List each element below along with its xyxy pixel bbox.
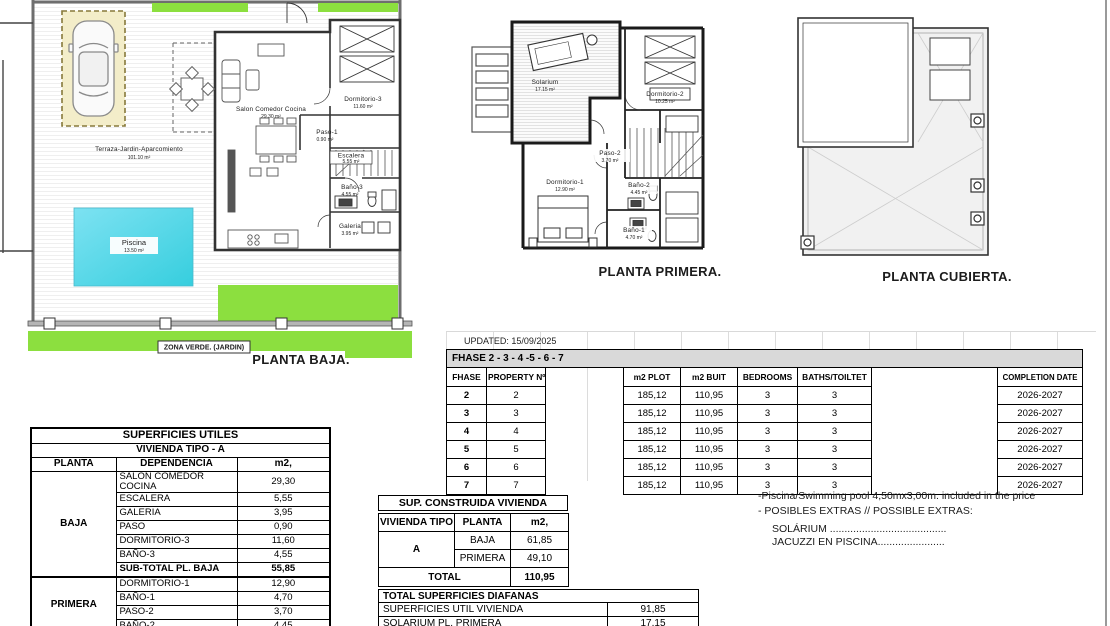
- bed-icon-dorm1: [529, 196, 597, 247]
- col-header-built: m2 BUIT: [681, 368, 738, 387]
- cell-fhase: 3: [447, 405, 487, 423]
- m2-cell: 4,55: [237, 548, 330, 562]
- total-row: TOTAL 110,95: [379, 568, 569, 587]
- dependencia-cell: DORMITORIO-1: [116, 577, 237, 592]
- phase-table-row: 3 3 185,12 110,95 3 3 2026-2027: [447, 405, 1083, 423]
- bano3-area: 4.55 m²: [342, 192, 359, 198]
- terraza-label: Terraza-Jardin-Aparcomiento: [95, 146, 183, 153]
- green-strip-bottom-ext: [345, 351, 412, 358]
- subtotal-label: SUB-TOTAL PL. BAJA: [116, 562, 237, 577]
- escalera-area: 5.55 m²: [343, 159, 360, 165]
- plan-planta-cubierta: PLANTA CUBIERTA.: [770, 0, 1110, 300]
- superficies-utiles-table: SUPERFICIES UTILES VIVIENDA TIPO - A PLA…: [30, 427, 331, 626]
- paso1-area: 0.90 m²: [317, 137, 334, 143]
- bano3-label: Baño-3: [341, 184, 363, 191]
- m2-cell: 49,10: [511, 550, 569, 568]
- dependencia-cell: SALON COMEDOR COCINA: [116, 472, 237, 493]
- balcony-louvers: [472, 47, 512, 132]
- extra-solarium: SOLÁRIUM ...............................…: [772, 523, 1098, 535]
- gap-cell: [546, 459, 624, 477]
- cell-property: 6: [487, 459, 546, 477]
- planta-primera-title: PLANTA PRIMERA.: [599, 264, 722, 279]
- dependencia-cell: GALERIA: [116, 506, 237, 520]
- bano2-area: 4.45 m²: [631, 190, 648, 196]
- phase-table-row: 5 5 185,12 110,95 3 3 2026-2027: [447, 441, 1083, 459]
- dependencia-cell: BAÑO-2: [116, 619, 237, 626]
- diafanas-table: TOTAL SUPERFICIES DIAFANAS SUPERFICIES U…: [378, 589, 699, 626]
- gap-cell: [546, 423, 624, 441]
- m2-cell: 61,85: [511, 532, 569, 550]
- m2-cell: 11,60: [237, 534, 330, 548]
- planta-cell: BAJA: [455, 532, 511, 550]
- superficies-utiles-title: SUPERFICIES UTILES: [31, 428, 330, 444]
- col-planta: PLANTA: [455, 514, 511, 532]
- cell-fhase: 7: [447, 477, 487, 495]
- table-row: PRIMERA DORMITORIO-1 12,90: [31, 577, 330, 592]
- tipo-cell: A: [379, 532, 455, 568]
- sup-construida-title: SUP. CONSTRUIDA VIVIENDA: [378, 495, 568, 511]
- gap-cell: [546, 441, 624, 459]
- planta-primera-group-label: PRIMERA: [31, 577, 116, 626]
- cell-property: 5: [487, 441, 546, 459]
- dependencia-cell: PASO: [116, 520, 237, 534]
- sheet-right-border: [1105, 0, 1107, 626]
- cell-property: 4: [487, 423, 546, 441]
- salon-area: 29.30 m²: [261, 114, 281, 120]
- table-row: SUPERFICIES UTIL VIVIENDA 91,85: [379, 603, 699, 617]
- car-icon: [69, 21, 118, 116]
- dependencia-cell: DORMITORIO-3: [116, 534, 237, 548]
- cell-completion: 2026-2027: [998, 441, 1083, 459]
- cell-property: 7: [487, 477, 546, 495]
- cell-built: 110,95: [681, 423, 738, 441]
- col-dependencia: DEPENDENCIA: [116, 458, 237, 472]
- table-row: BAJA SALON COMEDOR COCINA 29,30: [31, 472, 330, 493]
- col-planta: PLANTA: [31, 458, 116, 472]
- m2-cell: 5,55: [237, 492, 330, 506]
- parking-area: [62, 11, 125, 126]
- cell-built: 110,95: [681, 477, 738, 495]
- green-strip-top-left: [152, 3, 248, 12]
- m2-cell: 0,90: [237, 520, 330, 534]
- house-outline: [215, 20, 400, 250]
- bano1-area: 4.70 m²: [626, 235, 643, 241]
- diafanas-row1-value: 91,85: [608, 603, 699, 617]
- construida-header-row: VIVIENDA TIPO PLANTA m2,: [379, 514, 569, 532]
- plan-planta-baja: Terraza-Jardin-Aparcomiento 101.10 m² Pi…: [0, 0, 445, 372]
- empty-box-cell: [872, 405, 998, 423]
- col-header-completion: COMPLETION DATE: [998, 368, 1083, 387]
- extras-notes: -Piscina/Swimming pool 4,50mx3,00m. incl…: [758, 490, 1098, 549]
- cell-plot: 185,12: [624, 477, 681, 495]
- solarium-circle: [587, 35, 597, 45]
- cell-completion: 2026-2027: [998, 423, 1083, 441]
- dorm1-label: Dormitorio-1: [546, 179, 584, 186]
- diafanas-row1-name: SUPERFICIES UTIL VIVIENDA: [379, 603, 608, 617]
- cell-plot: 185,12: [624, 423, 681, 441]
- dependencia-cell: PASO-2: [116, 605, 237, 619]
- planta-baja-group-label: BAJA: [31, 472, 116, 577]
- subtotal-value: 55,85: [237, 562, 330, 577]
- col-m2: m2,: [237, 458, 330, 472]
- plan-planta-primera: Solarium 17.15 m² Dormitorio-2 10.25 m²: [440, 0, 770, 300]
- total-label: TOTAL: [379, 568, 511, 587]
- m2-cell: 3,70: [237, 605, 330, 619]
- cell-bedrooms: 3: [738, 441, 798, 459]
- cell-completion: 2026-2027: [998, 405, 1083, 423]
- cell-plot: 185,12: [624, 459, 681, 477]
- phase-table-section: UPDATED: 15/09/2025 FHASE 2 - 3 - 4 -5 -…: [446, 333, 1096, 495]
- extra-jacuzzi: JACUZZI EN PISCINA......................…: [772, 536, 1098, 548]
- updated-date: UPDATED: 15/09/2025: [446, 333, 1096, 349]
- vivienda-tipo-subtitle: VIVIENDA TIPO - A: [31, 444, 330, 458]
- paso2-label: Paso-2: [599, 150, 621, 157]
- phase-table-row: 2 2 185,12 110,95 3 3 2026-2027: [447, 387, 1083, 405]
- cell-property: 3: [487, 405, 546, 423]
- empty-box-cell: [872, 459, 998, 477]
- possible-extras-heading: - POSIBLES EXTRAS // POSSIBLE EXTRAS:: [758, 505, 1098, 517]
- cell-baths: 3: [798, 441, 872, 459]
- empty-box-cell: [872, 441, 998, 459]
- diafanas-row2-name: SOLARIUM PL. PRIMERA: [379, 617, 608, 626]
- gap-cell: [546, 405, 624, 423]
- bano2-label: Baño-2: [628, 182, 650, 189]
- empty-box-cell: [872, 423, 998, 441]
- paso1-label: Paso-1: [316, 129, 338, 136]
- planta-cubierta-title: PLANTA CUBIERTA.: [882, 269, 1012, 284]
- sup-construida-table: VIVIENDA TIPO PLANTA m2, A BAJA 61,85 PR…: [378, 513, 569, 587]
- salon-label: Salon Comedor Cocina: [236, 106, 306, 113]
- paso2-area: 3.70 m²: [602, 158, 619, 164]
- dorm2-label: Dormitorio-2: [646, 91, 684, 98]
- galeria-area: 3.95 m²: [342, 231, 359, 237]
- table-row: SOLARIUM PL. PRIMERA 17,15: [379, 617, 699, 626]
- cell-bedrooms: 3: [738, 459, 798, 477]
- cell-built: 110,95: [681, 459, 738, 477]
- col-header-property: PROPERTY Nº: [487, 368, 546, 387]
- empty-box-cell: [872, 387, 998, 405]
- gap-cell: [546, 477, 624, 495]
- planta-cell: PRIMERA: [455, 550, 511, 568]
- green-area-bottom: [218, 285, 398, 322]
- cell-built: 110,95: [681, 405, 738, 423]
- dependencia-cell: ESCALERA: [116, 492, 237, 506]
- phase-table-row: 6 6 185,12 110,95 3 3 2026-2027: [447, 459, 1083, 477]
- col-header-baths: BATHS/TOILTET: [798, 368, 872, 387]
- planta-baja-title: PLANTA BAJA.: [252, 352, 350, 367]
- phase-title-row: FHASE 2 - 3 - 4 -5 - 6 - 7: [447, 350, 1083, 368]
- cell-completion: 2026-2027: [998, 387, 1083, 405]
- col-vivienda-tipo: VIVIENDA TIPO: [379, 514, 455, 532]
- phase-table-body: 2 2 185,12 110,95 3 3 2026-2027 3 3: [447, 387, 1083, 495]
- cell-plot: 185,12: [624, 405, 681, 423]
- solarium-area: 17.15 m²: [535, 87, 555, 93]
- phase-table-row: 4 4 185,12 110,95 3 3 2026-2027: [447, 423, 1083, 441]
- diafanas-row2-value: 17,15: [608, 617, 699, 626]
- solarium-label: Solarium: [532, 79, 559, 86]
- cell-baths: 3: [798, 459, 872, 477]
- plan-sheet-page: Terraza-Jardin-Aparcomiento 101.10 m² Pi…: [0, 0, 1110, 626]
- gap-cell: [546, 368, 624, 387]
- cell-fhase: 4: [447, 423, 487, 441]
- m2-cell: 12,90: [237, 577, 330, 592]
- cell-baths: 3: [798, 423, 872, 441]
- door-arcs: [590, 94, 641, 234]
- col-m2: m2,: [511, 514, 569, 532]
- pool-included-note: -Piscina/Swimming pool 4,50mx3,00m. incl…: [758, 490, 1098, 502]
- col-header-bedrooms: BEDROOMS: [738, 368, 798, 387]
- cell-fhase: 2: [447, 387, 487, 405]
- cell-baths: 3: [798, 405, 872, 423]
- dorm3-label: Dormitorio-3: [344, 96, 382, 103]
- cell-completion: 2026-2027: [998, 459, 1083, 477]
- cell-fhase: 6: [447, 459, 487, 477]
- phase-header-row: FHASE PROPERTY Nº m2 PLOT m2 BUIT BEDROO…: [447, 368, 1083, 387]
- dependencia-cell: BAÑO-3: [116, 548, 237, 562]
- dorm1-area: 12.90 m²: [555, 187, 575, 193]
- dorm3-area: 11.60 m²: [353, 104, 373, 110]
- m2-cell: 4,70: [237, 591, 330, 605]
- piscina-area: 13.50 m²: [124, 248, 144, 254]
- diafanas-title: TOTAL SUPERFICIES DIAFANAS: [379, 590, 699, 603]
- table-row: A BAJA 61,85: [379, 532, 569, 550]
- cell-fhase: 5: [447, 441, 487, 459]
- cell-plot: 185,12: [624, 441, 681, 459]
- solarium-roof-opening: [798, 18, 913, 147]
- sup-construida-section: SUP. CONSTRUIDA VIVIENDA VIVIENDA TIPO P…: [378, 495, 568, 587]
- bano1-label: Baño-1: [623, 227, 645, 234]
- m2-cell: 29,30: [237, 472, 330, 493]
- cell-plot: 185,12: [624, 387, 681, 405]
- dependencia-cell: BAÑO-1: [116, 591, 237, 605]
- cell-property: 2: [487, 387, 546, 405]
- stairs-icon: [630, 128, 703, 177]
- cell-baths: 3: [798, 387, 872, 405]
- galeria-label: Galeria: [339, 223, 361, 230]
- col-header-fhase: FHASE: [447, 368, 487, 387]
- cell-built: 110,95: [681, 441, 738, 459]
- col-header-plot: m2 PLOT: [624, 368, 681, 387]
- terraza-area: 101.10 m²: [128, 155, 151, 161]
- cell-bedrooms: 3: [738, 423, 798, 441]
- cell-bedrooms: 3: [738, 387, 798, 405]
- m2-cell: 3,95: [237, 506, 330, 520]
- m2-cell: 4,45: [237, 619, 330, 626]
- cell-bedrooms: 3: [738, 405, 798, 423]
- zona-verde-label-box: ZONA VERDE. (JARDIN): [158, 341, 250, 353]
- empty-box-cell: [872, 368, 998, 387]
- cell-built: 110,95: [681, 387, 738, 405]
- phase-table: FHASE 2 - 3 - 4 -5 - 6 - 7 FHASE PROPERT…: [446, 349, 1083, 495]
- piscina-label: Piscina: [122, 238, 147, 247]
- dorm2-area: 10.25 m²: [655, 99, 675, 105]
- phase-title-bar: FHASE 2 - 3 - 4 -5 - 6 - 7: [447, 350, 1083, 368]
- gap-cell: [546, 387, 624, 405]
- total-value: 110,95: [511, 568, 569, 587]
- superficies-header-row: PLANTA DEPENDENCIA m2,: [31, 458, 330, 472]
- pool: Piscina 13.50 m²: [74, 208, 193, 286]
- green-strip-top-right: [318, 3, 398, 12]
- neighbor-wall-stubs: [0, 23, 33, 253]
- zona-verde-label: ZONA VERDE. (JARDIN): [164, 345, 244, 352]
